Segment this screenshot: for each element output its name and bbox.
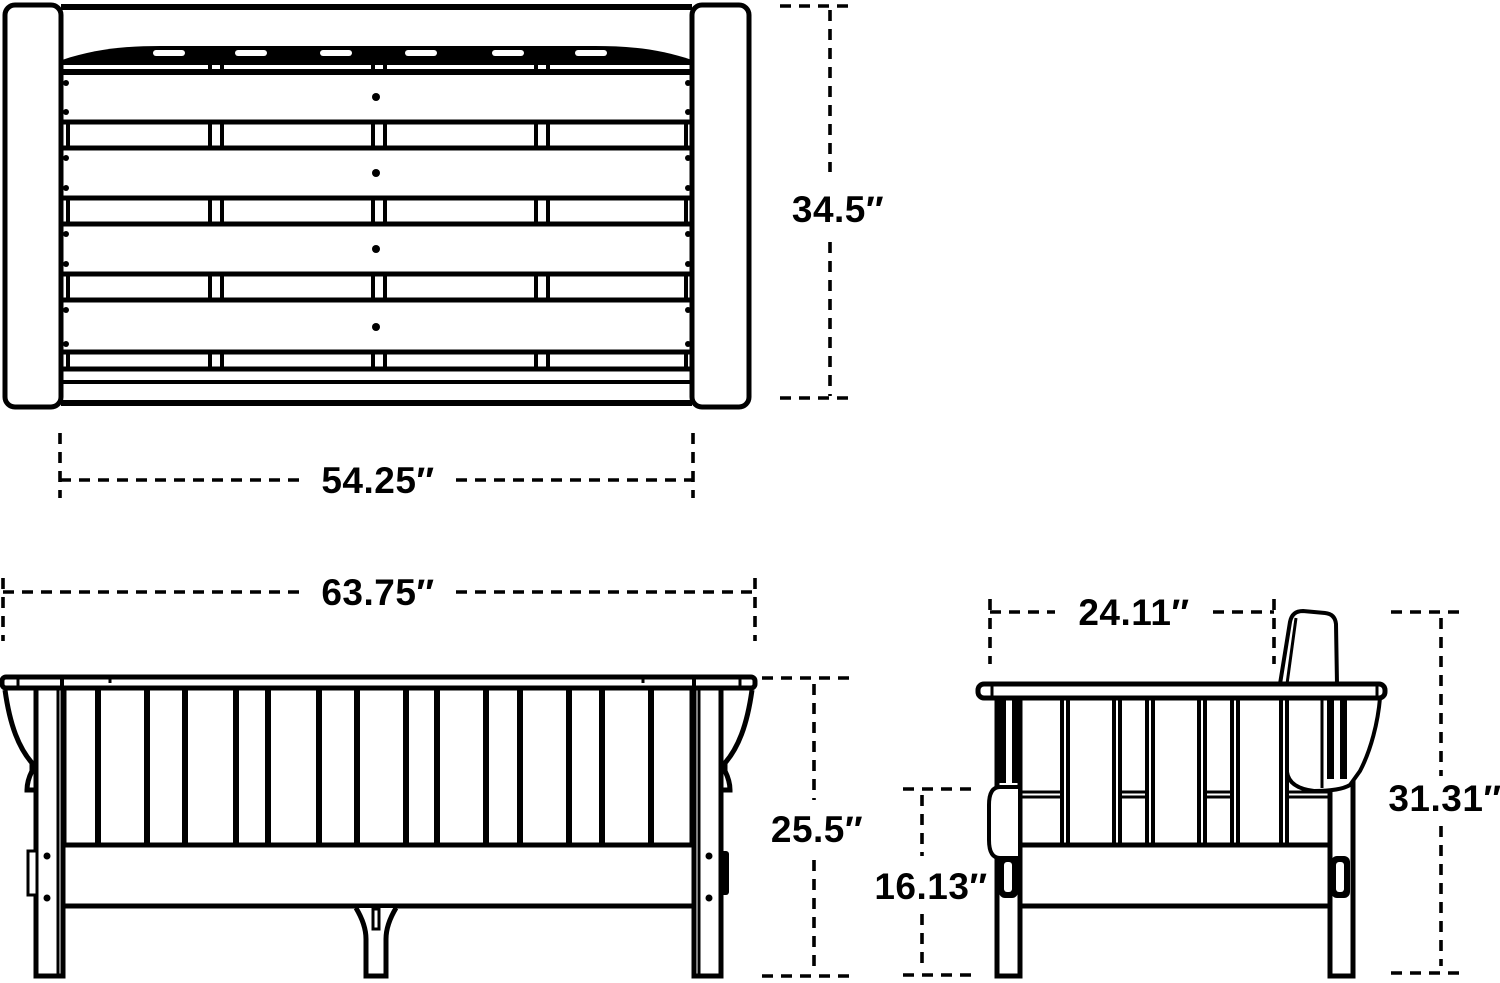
side-view-width-dimension: 24.11″ [990,592,1274,664]
screw-dot [685,341,691,347]
side-view-overall-height-dimension: 31.31″ [1388,612,1500,973]
crest-dash [492,50,524,56]
dimension-diagram: 34.5″ 54.25″ 63.75″ [0,0,1500,983]
top-view-height-label: 34.5″ [792,189,884,230]
rear-post-board [1340,692,1347,779]
front-leg-bracket-slot [1004,862,1012,892]
top-view-height-dimension: 34.5″ [780,6,884,398]
side-view: 24.11″ [874,592,1500,976]
side-view-seat-height-dimension: 16.13″ [874,789,987,975]
leg-screw-dot [44,895,51,902]
side-view-armrest [978,684,1385,698]
screw-dot [685,261,691,267]
screw-dot [372,323,380,331]
front-view-width-label: 63.75″ [321,572,434,613]
front-view-right-wing [721,690,752,790]
screw-dot [372,93,380,101]
screw-dot [63,261,69,267]
center-leg-slot [373,909,379,929]
rear-leg-bracket-slot [1336,862,1344,892]
leg-screw-dot [44,853,51,860]
front-view-width-dimension: 63.75″ [3,572,755,641]
side-view-front-cap [989,787,1020,858]
side-view-slats [1021,692,1329,845]
screw-dot [63,341,69,347]
top-view-width-label: 54.25″ [321,460,434,501]
screw-dot [685,80,691,86]
screw-dot [63,185,69,191]
top-view-right-arm [692,5,749,407]
crest-dash [235,50,267,56]
diagram-svg: 34.5″ 54.25″ 63.75″ [0,0,1500,983]
screw-dot [685,109,691,115]
right-leg-tab [719,851,729,895]
screw-dot [685,307,691,313]
leg-screw-dot [706,895,713,902]
crest-dash [320,50,352,56]
screw-dot [685,185,691,191]
front-view-left-wing [5,690,36,790]
crest-dash [405,50,437,56]
rear-post-board [1327,692,1334,779]
screw-dot [372,245,380,253]
front-view-height-label: 25.5″ [771,809,863,850]
screw-dot [685,155,691,161]
side-view-width-label: 24.11″ [1078,592,1189,633]
front-post-board [999,692,1006,783]
side-view-seat-height-label: 16.13″ [874,866,987,907]
front-view-height-dimension: 25.5″ [762,678,863,976]
left-leg-tab [28,851,37,895]
screw-dot [63,109,69,115]
screw-dot [63,307,69,313]
top-view-slat-lines [62,72,692,382]
top-view: 34.5″ 54.25″ [5,5,884,501]
top-view-width-dimension: 54.25″ [60,433,693,501]
front-view: 63.75″ [2,572,863,976]
screw-dot [63,231,69,237]
screw-dot [63,155,69,161]
screw-dot [372,169,380,177]
screw-dot [685,231,691,237]
top-view-slat-dividers [68,62,686,367]
side-view-overall-height-label: 31.31″ [1388,778,1500,819]
screw-dot [63,80,69,86]
crest-dash [575,50,607,56]
top-view-left-arm [5,5,61,407]
leg-screw-dot [706,853,713,860]
front-view-back-slats [64,688,692,845]
front-post-board [1012,692,1019,783]
crest-dash [153,50,185,56]
